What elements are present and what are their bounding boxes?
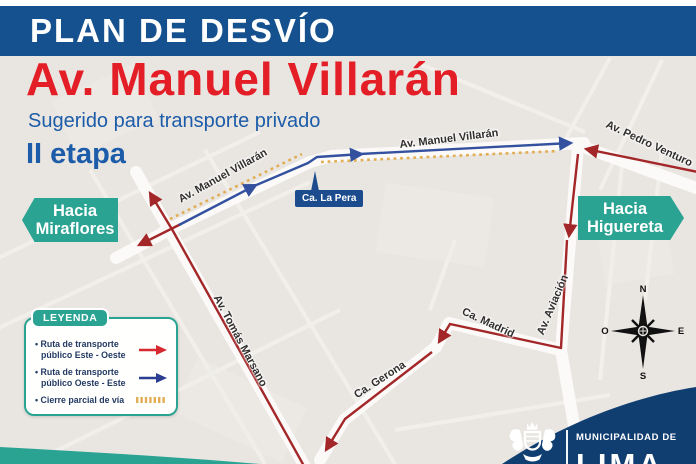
banner-title: PLAN DE DESVÍO — [30, 12, 337, 50]
legend-item-west-east: • Ruta de transporte público Oeste - Est… — [35, 367, 168, 388]
legend-item-3-line1: • Cierre parcial de vía — [35, 395, 124, 406]
west-east-blue-arrow-icon — [138, 372, 168, 384]
footer-divider — [566, 430, 568, 464]
direction-east-line1: Hacia — [603, 200, 647, 218]
stage-label: II etapa — [26, 138, 126, 171]
la-pera-callout: Ca. La Pera — [295, 190, 363, 207]
legend-item-2-line1: • Ruta de transporte — [35, 367, 126, 378]
compass-south-label: S — [640, 371, 646, 382]
legend-item-2-line2: público Oeste - Este — [35, 378, 126, 389]
legend-item-east-west: • Ruta de transporte público Este - Oest… — [35, 339, 168, 360]
direction-west-line2: Miraflores — [36, 220, 115, 238]
east-west-red-arrow-icon — [138, 344, 168, 356]
compass-east-label: E — [678, 326, 684, 337]
page-title: Av. Manuel Villarán — [26, 56, 461, 102]
municipality-lima: LIMA — [576, 447, 664, 464]
legend-item-closure: • Cierre parcial de vía — [35, 395, 168, 406]
la-pera-callout-pointer — [311, 171, 319, 191]
direction-east-line2: Higuereta — [587, 218, 663, 236]
compass-north-label: N — [640, 284, 647, 295]
legend-item-1-line1: • Ruta de transporte — [35, 339, 126, 350]
legend-item-1-line2: público Este - Oeste — [35, 350, 126, 361]
legend-title: LEYENDA — [31, 308, 109, 328]
top-banner: PLAN DE DESVÍO — [0, 6, 696, 56]
compass-west-label: O — [601, 326, 608, 337]
legend-box: LEYENDA • Ruta de transporte público Est… — [24, 317, 178, 416]
municipality-name: MUNICIPALIDAD DE — [576, 432, 677, 443]
partial-closure-dashes-icon — [136, 396, 168, 404]
direction-box-miraflores: Hacia Miraflores — [22, 198, 118, 242]
direction-box-higuereta: Hacia Higuereta — [578, 196, 684, 240]
detour-plan-poster: N S E O PLAN DE DESVÍO Av. Manuel Villar… — [0, 0, 696, 464]
page-subtitle: Sugerido para transporte privado — [28, 110, 320, 133]
direction-west-line1: Hacia — [53, 202, 97, 220]
